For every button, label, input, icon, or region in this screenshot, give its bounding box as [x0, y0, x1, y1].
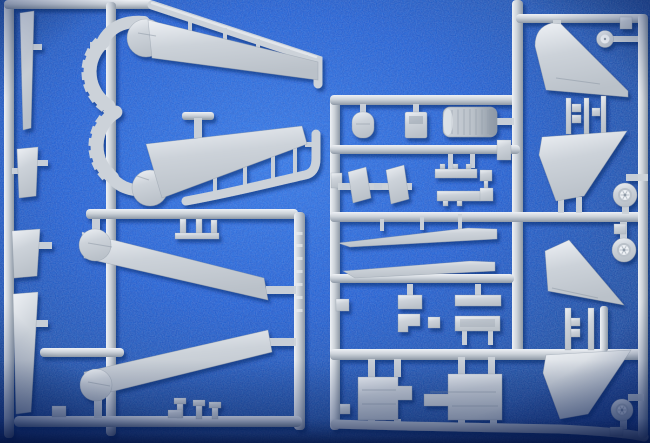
bottom-shade: [0, 360, 650, 443]
sprue-illustration: [0, 0, 650, 443]
kit-sprue-photo: [0, 0, 650, 443]
